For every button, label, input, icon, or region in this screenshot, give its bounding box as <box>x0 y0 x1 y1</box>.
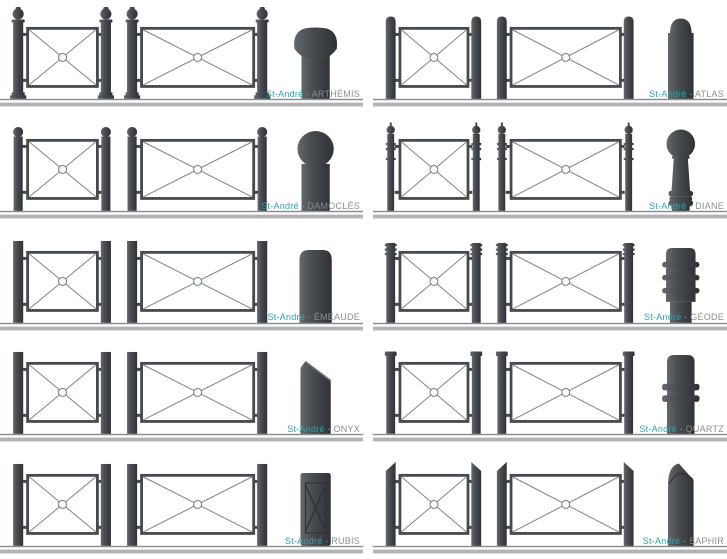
product-name: ONYX <box>333 424 360 434</box>
product-label: St-André - DIANE <box>649 201 724 211</box>
bollard-graphic <box>668 464 694 546</box>
label-separator: - <box>305 312 314 322</box>
product-cell-onyx: St-André - ONYX <box>0 335 363 447</box>
brand-name: St-André <box>643 536 681 546</box>
ground-line <box>373 99 727 100</box>
row-separator-line <box>0 438 363 442</box>
bollard-graphic <box>667 129 696 210</box>
label-separator: - <box>303 89 311 99</box>
label-separator: - <box>681 312 690 322</box>
small-fence-panel <box>13 464 111 546</box>
brand-name: St-André <box>639 424 677 434</box>
ground-line <box>373 211 727 212</box>
row-separator-line <box>373 438 727 442</box>
product-cell-emeaude: St-André - ÉMEAUDE <box>0 224 363 336</box>
product-cell-rubis: St-André - RUBIS <box>0 447 363 559</box>
row-separator-line <box>373 326 727 330</box>
large-fence-panel <box>127 127 267 211</box>
small-fence-panel <box>13 127 111 211</box>
brand-name: St-André <box>261 201 299 211</box>
brand-name: St-André <box>644 312 682 322</box>
product-name: SAPHIR <box>689 536 724 546</box>
row-separator-line <box>0 103 363 107</box>
small-fence-panel <box>386 16 481 98</box>
small-fence-panel <box>385 352 482 434</box>
label-separator: - <box>322 536 331 546</box>
product-label: St-André - SAPHIR <box>643 536 724 546</box>
large-fence-panel <box>127 241 267 323</box>
row-separator-line <box>0 326 363 330</box>
product-name: DAMOCLÉS <box>307 201 360 211</box>
product-label: St-André - RUBIS <box>285 536 360 546</box>
product-cell-atlas: St-André - ATLAS <box>373 0 727 112</box>
label-separator: - <box>687 89 695 99</box>
large-fence-panel <box>496 352 635 434</box>
product-label: St-André - DAMOCLÉS <box>261 201 360 211</box>
product-label: St-André - ARTHÉMIS <box>266 89 360 99</box>
row-separator-line <box>0 214 363 218</box>
large-fence-panel <box>124 7 270 99</box>
small-fence-panel <box>10 7 114 99</box>
large-fence-panel <box>497 122 634 210</box>
ground-line <box>373 434 727 435</box>
row-separator-line <box>373 550 727 554</box>
product-name: ÉMEAUDE <box>314 312 360 322</box>
product-label: St-André - QUARTZ <box>639 424 724 434</box>
bollard-graphic <box>668 18 694 98</box>
row-separator-line <box>373 214 727 218</box>
ground-line <box>0 99 363 100</box>
product-name: ATLAS <box>695 89 724 99</box>
product-cell-arthemis: St-André - ARTHÉMIS <box>0 0 363 112</box>
catalog-page: St-André - ARTHÉMIS St-André - ATLAS St-… <box>0 0 727 559</box>
ground-line <box>0 322 363 323</box>
bollard-graphic <box>662 248 699 323</box>
row-separator-line <box>0 550 363 554</box>
small-fence-panel <box>13 352 111 434</box>
brand-name: St-André <box>649 89 687 99</box>
product-cell-geode: St-André - GÉODE <box>373 224 727 336</box>
product-label: St-André - GÉODE <box>644 312 724 322</box>
product-name: RUBIS <box>331 536 360 546</box>
row-separator-line <box>373 103 727 107</box>
bollard-graphic <box>662 355 699 434</box>
ground-line <box>0 211 363 212</box>
product-name: ARTHÉMIS <box>312 89 360 99</box>
large-fence-panel <box>127 464 267 546</box>
product-cell-diane: St-André - DIANE <box>373 112 727 224</box>
large-fence-panel <box>497 462 634 546</box>
brand-name: St-André <box>285 536 323 546</box>
product-cell-damocles: St-André - DAMOCLÉS <box>0 112 363 224</box>
large-fence-panel <box>127 352 267 434</box>
large-fence-panel <box>496 243 635 323</box>
product-label: St-André - ÉMEAUDE <box>267 312 360 322</box>
bollard-graphic <box>297 131 333 211</box>
small-fence-panel <box>385 243 482 323</box>
brand-name: St-André <box>649 201 687 211</box>
product-label: St-André - ATLAS <box>649 89 724 99</box>
brand-name: St-André <box>266 89 304 99</box>
product-name: QUARTZ <box>686 424 724 434</box>
label-separator: - <box>686 201 695 211</box>
small-fence-panel <box>386 122 481 210</box>
ground-line <box>373 322 727 323</box>
small-fence-panel <box>13 241 111 323</box>
small-fence-panel <box>386 462 481 546</box>
ground-line <box>373 546 727 547</box>
brand-name: St-André <box>287 424 325 434</box>
product-name: GÉODE <box>690 312 724 322</box>
product-cell-quartz: St-André - QUARTZ <box>373 335 727 447</box>
ground-line <box>0 434 363 435</box>
label-separator: - <box>677 424 686 434</box>
brand-name: St-André <box>267 312 305 322</box>
label-separator: - <box>680 536 689 546</box>
large-fence-panel <box>497 16 634 98</box>
ground-line <box>0 546 363 547</box>
product-name: DIANE <box>695 201 724 211</box>
product-cell-saphir: St-André - SAPHIR <box>373 447 727 559</box>
product-label: St-André - ONYX <box>287 424 360 434</box>
